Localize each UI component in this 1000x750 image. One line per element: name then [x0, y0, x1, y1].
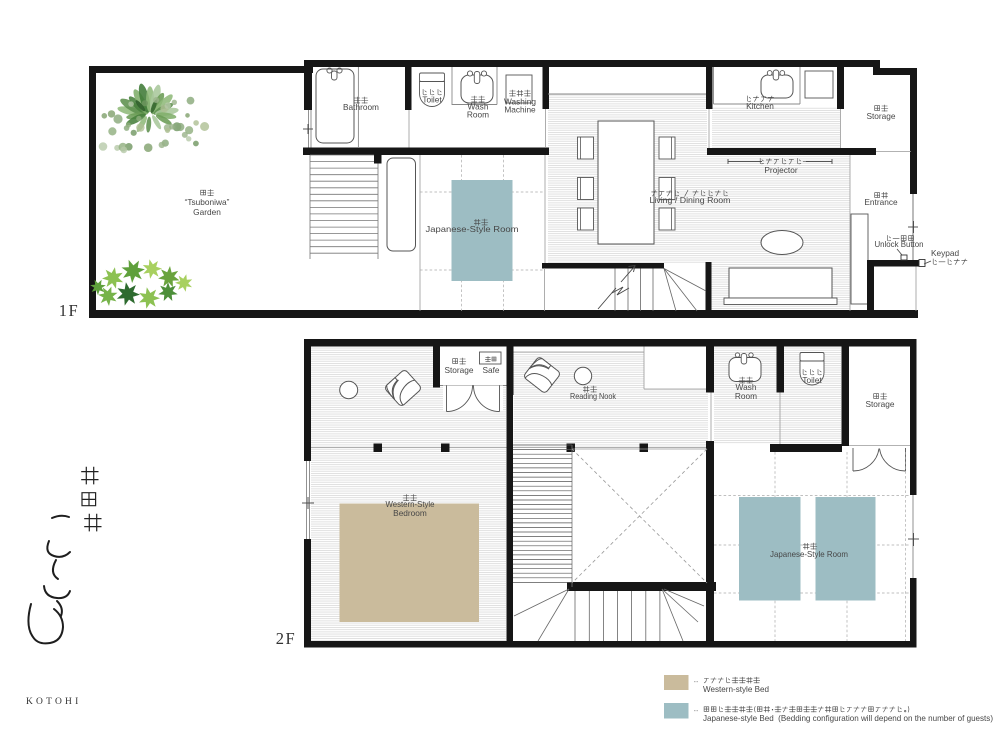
svg-text:“Tsuboniwa”: “Tsuboniwa”: [185, 197, 230, 207]
svg-text:Safe: Safe: [482, 365, 499, 375]
svg-text:Japanese-Style Room: Japanese-Style Room: [426, 224, 519, 234]
svg-text:Machine: Machine: [504, 105, 536, 115]
svg-text:Keypad: Keypad: [931, 248, 960, 258]
svg-text:Reading Nook: Reading Nook: [570, 391, 617, 401]
svg-text:Western-style Bed: Western-style Bed: [703, 684, 769, 694]
svg-text:Storage: Storage: [866, 111, 895, 121]
svg-text:Storage: Storage: [444, 365, 473, 375]
svg-text:Entrance: Entrance: [864, 197, 898, 207]
svg-text:Room: Room: [735, 391, 757, 401]
svg-text:KOTOHI: KOTOHI: [26, 697, 81, 707]
svg-text:1F: 1F: [59, 301, 79, 320]
svg-text:Living / Dining Room: Living / Dining Room: [650, 195, 731, 205]
svg-text:Japanese-Style Room: Japanese-Style Room: [770, 549, 848, 559]
svg-text:Japanese-style Bed (Bedding c: Japanese-style Bed (Bedding configuratio…: [703, 713, 993, 723]
svg-text:Storage: Storage: [865, 399, 894, 409]
svg-text:Toilet: Toilet: [422, 95, 442, 105]
svg-text:Kitchen: Kitchen: [746, 101, 774, 111]
svg-text:Garden: Garden: [193, 207, 221, 217]
svg-text:Room: Room: [467, 110, 489, 120]
svg-text:2F: 2F: [276, 629, 296, 648]
svg-text:Unlock Button: Unlock Button: [875, 239, 924, 249]
svg-text:Projector: Projector: [764, 165, 797, 175]
svg-text:Toilet: Toilet: [802, 375, 822, 385]
svg-text:Bathroom: Bathroom: [343, 102, 379, 112]
svg-text:Bedroom: Bedroom: [393, 508, 427, 518]
